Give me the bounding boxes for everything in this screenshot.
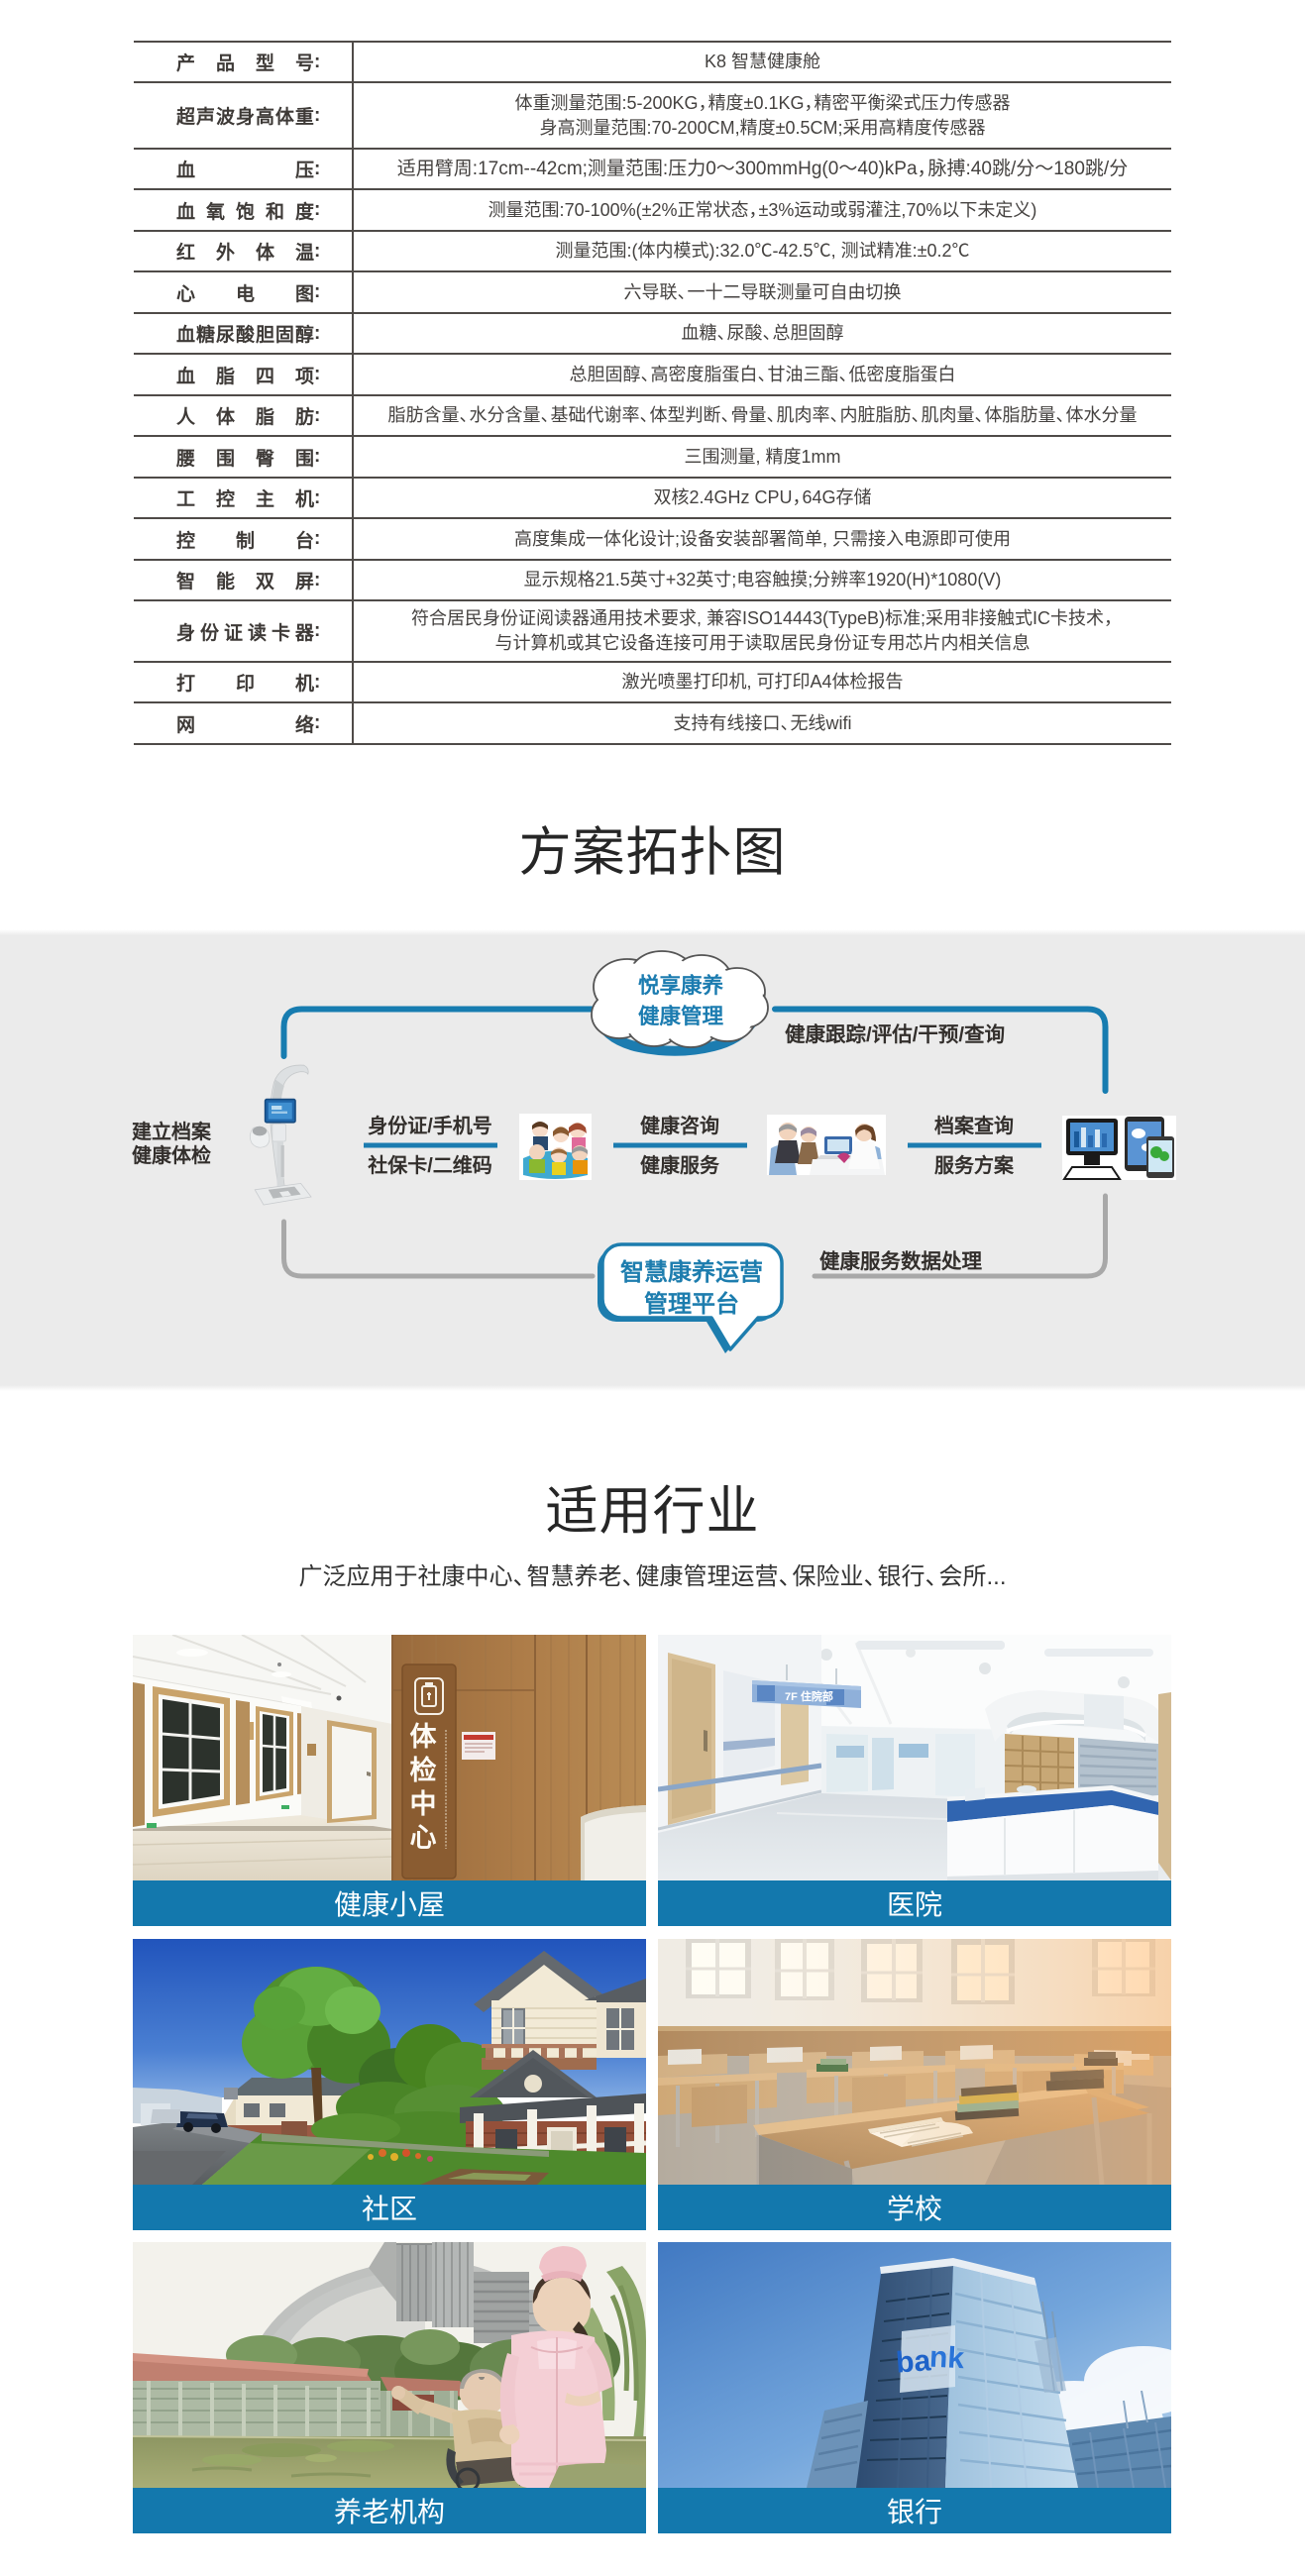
svg-text:建立档案: 建立档案	[132, 1120, 212, 1143]
svg-text:健康跟踪/评估/干预/查询: 健康跟踪/评估/干预/查询	[785, 1022, 1005, 1046]
svg-text:健康服务: 健康服务	[640, 1153, 720, 1177]
svg-text:检: 检	[410, 1755, 437, 1785]
svg-text:身份证/手机号: 身份证/手机号	[368, 1114, 492, 1137]
svg-text:健康体检: 健康体检	[132, 1143, 211, 1167]
svg-text:中: 中	[410, 1789, 437, 1819]
svg-text:智慧康养运营: 智慧康养运营	[620, 1258, 763, 1286]
svg-text:服务方案: 服务方案	[934, 1153, 1015, 1177]
svg-text:体: 体	[410, 1722, 438, 1752]
svg-text:7F 住院部: 7F 住院部	[785, 1689, 833, 1703]
svg-text:健康服务数据处理: 健康服务数据处理	[819, 1249, 982, 1273]
svg-text:档案查询: 档案查询	[934, 1114, 1014, 1137]
svg-text:ba: ba	[895, 2344, 932, 2379]
svg-text:心: 心	[410, 1823, 437, 1853]
svg-text:健康咨询: 健康咨询	[640, 1114, 719, 1137]
svg-text:社保卡/二维码: 社保卡/二维码	[367, 1153, 492, 1177]
svg-text:悦享康养: 悦享康养	[638, 973, 724, 998]
svg-text:健康管理: 健康管理	[638, 1004, 724, 1028]
svg-text:管理平台: 管理平台	[644, 1290, 739, 1318]
svg-text:nk: nk	[928, 2341, 965, 2376]
